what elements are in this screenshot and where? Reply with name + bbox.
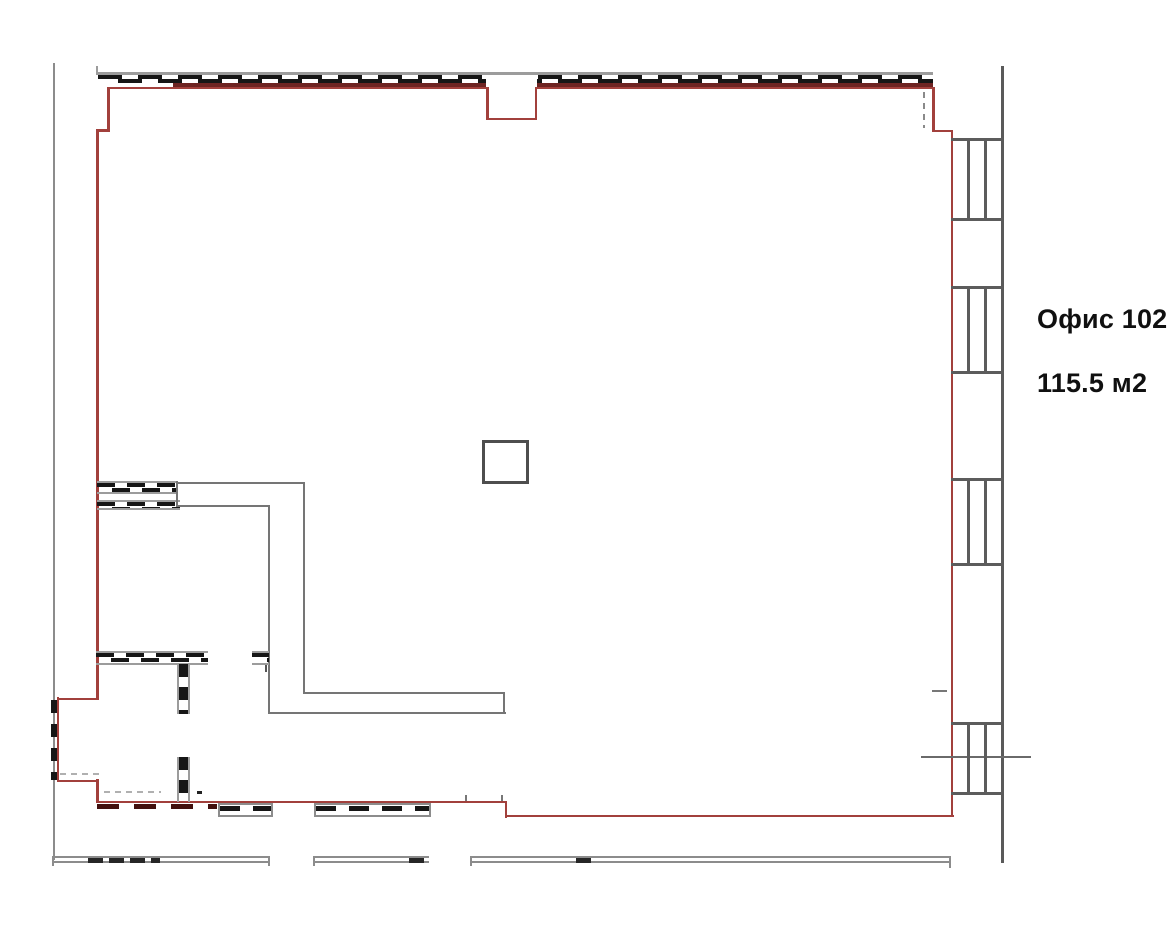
column xyxy=(482,440,529,484)
top-notch-gap xyxy=(486,75,537,90)
door-jamb-stub xyxy=(252,651,269,665)
window xyxy=(951,286,1003,374)
adjacent-wall-segment xyxy=(52,856,270,863)
wall-tick xyxy=(932,690,947,692)
outline-left xyxy=(96,129,99,700)
segment-dark-hatch xyxy=(576,858,594,863)
window-mullion xyxy=(984,725,987,792)
wall-strip-hatched xyxy=(177,664,190,714)
segment-end-tick xyxy=(949,858,951,868)
segment-dark-hatch xyxy=(409,858,424,863)
outline-topleft-v xyxy=(107,87,110,131)
outline-alcove-bottom xyxy=(57,780,99,783)
adjacent-wall-segment xyxy=(313,856,429,863)
segment-dark-hatch xyxy=(88,858,160,863)
room-name-label: Офис 102 xyxy=(1037,304,1167,335)
partition-left-edge xyxy=(268,505,270,714)
partition-bottom-inner xyxy=(303,692,505,694)
small-mark xyxy=(197,791,202,794)
window-mullion xyxy=(967,141,970,218)
outline-bottom-2 xyxy=(505,815,954,818)
window-mullion xyxy=(984,289,987,371)
hidden-edge-dashed-line xyxy=(923,92,925,128)
top-notch-right xyxy=(535,87,538,120)
outline-alcove-top xyxy=(57,698,99,701)
partition-bottom-outer xyxy=(268,712,506,714)
sill-hatched-box xyxy=(218,803,273,817)
door-opening-dashes xyxy=(60,773,101,775)
top-notch-left xyxy=(486,87,489,120)
outline-topright-step xyxy=(932,130,953,133)
wall-strip-hatched xyxy=(177,757,190,802)
wall-stub-hatched xyxy=(97,500,180,510)
sill-hatched-box xyxy=(314,803,431,817)
window-mullion xyxy=(967,481,970,563)
segment-end-tick xyxy=(52,856,54,866)
floorplan: Офис 102 115.5 м2 xyxy=(0,0,1175,933)
adjacent-wall-segment xyxy=(470,856,951,863)
window-mullion xyxy=(967,725,970,792)
outline-left-lower xyxy=(96,779,99,803)
segment-end-tick xyxy=(268,856,270,866)
window-mullion xyxy=(984,481,987,563)
window-mullion xyxy=(967,289,970,371)
segment-end-tick xyxy=(313,856,315,866)
wall-tick xyxy=(501,795,503,801)
wall-stub-hatched xyxy=(96,651,208,665)
partition-top-inner xyxy=(176,505,269,507)
wall-tick xyxy=(465,795,467,801)
window-mullion xyxy=(984,141,987,218)
window xyxy=(951,478,1003,566)
window xyxy=(951,722,1003,795)
window xyxy=(951,138,1003,221)
segment-end-tick xyxy=(470,856,472,866)
door-jamb-tick xyxy=(265,665,267,672)
door-opening-dashes xyxy=(104,791,161,793)
room-area-label: 115.5 м2 xyxy=(1037,368,1147,399)
wall-stub-cap xyxy=(176,481,178,507)
outline-right xyxy=(951,131,954,817)
bottom-wall-hatch xyxy=(97,804,217,809)
wall-stub-hatched xyxy=(97,481,178,494)
partition-top-outer xyxy=(176,482,305,484)
outline-topright-v xyxy=(932,87,935,131)
top-notch-bottom xyxy=(486,118,537,121)
partition-end-cap xyxy=(503,692,505,714)
partition-right-edge xyxy=(303,482,305,694)
outline-alcove-left xyxy=(57,697,60,782)
